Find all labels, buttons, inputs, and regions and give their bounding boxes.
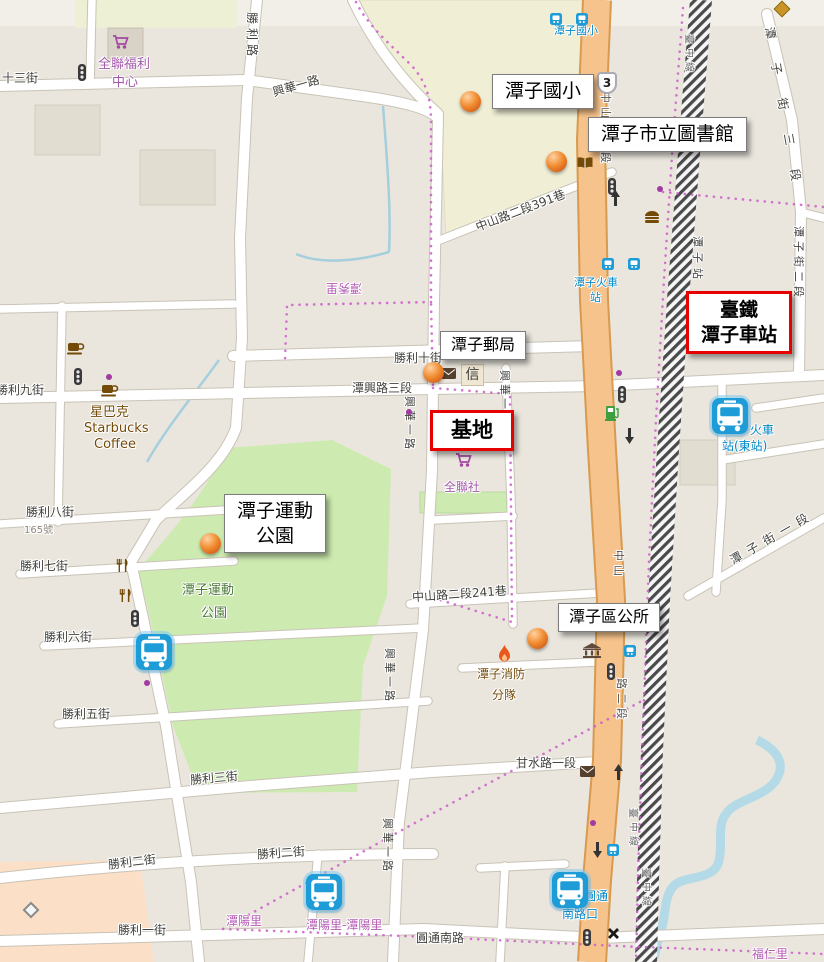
busstop-label-east-line2: 站(東站) — [722, 440, 767, 452]
busstop-label-yuantong-line2: 南路口 — [562, 908, 598, 920]
marker-district-office — [527, 628, 548, 649]
bus-station-icon-park — [136, 634, 172, 670]
bus-stop-icon-3 — [602, 255, 614, 267]
rail-line-label-2: 臺中線 — [627, 808, 637, 863]
rail-line-label-3: 臺中線 — [640, 868, 650, 923]
poi-fire-line1: 潭子消防 — [477, 668, 525, 680]
rail-line-label-1: 臺中線 — [683, 34, 693, 104]
oneway-arrow-up-2 — [614, 764, 623, 784]
boundary-dot-3 — [406, 409, 412, 415]
fast-food-icon — [644, 209, 660, 228]
callout-station-line1: 臺鐵 — [701, 298, 777, 323]
callout-station-line2: 潭子車站 — [701, 323, 777, 348]
supermarket-cart-icon-1 — [112, 34, 130, 54]
poi-pxmart-line2: 中心 — [112, 76, 138, 89]
marker-sports-park — [200, 533, 221, 554]
poi-fire-line2: 分隊 — [492, 689, 516, 701]
library-book-icon — [576, 155, 594, 174]
fuel-station-icon — [605, 404, 620, 425]
fire-station-icon — [497, 645, 512, 667]
bus-stop-icon-2 — [576, 10, 588, 22]
poi-pxmart2: 全聯社 — [444, 481, 480, 493]
road-label-shengli-2-e: 勝利二街 — [257, 845, 306, 860]
oneway-arrow-up-1 — [611, 190, 620, 210]
bus-station-icon-yuantong — [552, 872, 588, 908]
road-label-shengli-rd: 勝利路 — [246, 12, 258, 92]
boundary-dot-1 — [106, 374, 112, 380]
bus-station-icon-tanyang — [306, 874, 342, 910]
traffic-light-icon-3 — [131, 610, 139, 631]
bus-station-icon-east — [712, 398, 748, 434]
busstop-label-station-line2: 站 — [590, 292, 601, 303]
road-label-shengli-6: 勝利六街 — [44, 631, 92, 643]
bus-stop-icon-1 — [550, 10, 562, 22]
road-label-shengli-9: 勝利九街 — [0, 384, 44, 396]
cafe-icon-2 — [100, 382, 120, 403]
boundary-dot-2 — [616, 370, 622, 376]
boundary-label-tanxiu: 潭秀里 — [326, 282, 362, 294]
callout-site: 基地 — [430, 410, 514, 451]
poi-park-line1: 潭子運動 — [182, 584, 234, 597]
poi-pxmart-line1: 全聯福利 — [98, 58, 150, 71]
road-label-ganshui-1: 甘水路一段 — [516, 757, 576, 769]
road-label-xinghua-1st-v4: 興華一路 — [382, 818, 393, 898]
road-label-shengli-8: 勝利八街 — [26, 506, 74, 518]
poi-starbucks-line3: Coffee — [94, 438, 136, 451]
oneway-arrow-down-1 — [625, 424, 634, 444]
road-label-zhongshan-2b: 路二段 — [616, 678, 627, 738]
busstop-label-east-line1: 火車 — [750, 424, 774, 436]
callout-district-office: 潭子區公所 — [558, 603, 660, 632]
oneway-arrow-down-2 — [593, 838, 602, 858]
boundary-dot-4 — [144, 680, 150, 686]
traffic-light-icon-1 — [78, 64, 86, 85]
house-number-165: 165號 — [24, 526, 53, 536]
poi-starbucks-line1: 星巴克 — [90, 406, 129, 419]
post-letter-char: 信 — [466, 367, 480, 383]
route-3-number: 3 — [603, 76, 611, 90]
route-3-shield-icon: 3 — [597, 72, 617, 94]
bus-stop-icon-4 — [628, 255, 640, 267]
boundary-dot-5 — [590, 820, 596, 826]
traffic-light-icon-6 — [607, 663, 615, 684]
poi-starbucks-line2: Starbucks — [84, 422, 149, 435]
post-letter-icon: 信 — [461, 364, 484, 386]
callout-tanzi-elementary: 潭子國小 — [492, 74, 594, 109]
cafe-icon-1 — [66, 340, 86, 361]
traffic-light-icon-7 — [583, 929, 591, 950]
callout-tra-tanzi-station: 臺鐵 潭子車站 — [686, 291, 792, 354]
bus-stop-icon-5 — [624, 642, 636, 654]
restaurant-icon-2 — [119, 588, 133, 607]
callout-tanzi-post-office: 潭子郵局 — [440, 331, 526, 360]
callout-tanzi-library: 潭子市立圖書館 — [588, 117, 747, 152]
post-box-icon — [580, 762, 595, 781]
road-label-shengli-7: 勝利七街 — [20, 560, 68, 572]
poi-park-line2: 公園 — [201, 607, 227, 620]
boundary-label-tanyang-pair: 潭陽里-潭陽里 — [306, 919, 382, 931]
supermarket-cart-icon-2 — [455, 452, 473, 472]
boundary-label-tanyang: 潭陽里 — [226, 915, 262, 927]
callout-sports-park-line1: 潭子運動 — [237, 499, 313, 524]
level-crossing-icon — [606, 926, 621, 945]
map-canvas[interactable]: 勝利路 十三街 興華一路 中山路二段391巷 潭子街三段 潭子街二段 潭子街一段… — [0, 0, 824, 962]
marker-school — [460, 91, 481, 112]
road-label-tanzi-st-2: 潭子街二段 — [793, 226, 804, 321]
road-label-xinghua-1st-v1: 興華一路 — [404, 396, 415, 476]
callout-sports-park-line2: 公園 — [237, 524, 313, 549]
busstop-label-school: 潭子國小 — [554, 25, 598, 36]
boundary-label-furen: 福仁里 — [752, 948, 788, 960]
restaurant-icon-1 — [116, 558, 130, 577]
traffic-light-icon-2 — [74, 368, 82, 389]
callout-sports-park: 潭子運動 公園 — [224, 494, 326, 553]
road-label-tanxing-3: 潭興路三段 — [352, 382, 412, 394]
road-label-13th-st: 十三街 — [2, 72, 38, 84]
road-label-shengli-1: 勝利一街 — [118, 924, 166, 936]
marker-library — [546, 151, 567, 172]
road-label-zhongshan-2a: 中山 — [613, 550, 624, 590]
road-label-shengli-5: 勝利五街 — [62, 708, 110, 720]
town-hall-icon — [583, 643, 601, 662]
road-label-yuantong-s: 圓通南路 — [416, 932, 464, 944]
road-label-xinghua-1st-v3: 興華一路 — [384, 648, 395, 728]
bus-stop-icon-6 — [607, 841, 619, 853]
boundary-dot-6 — [657, 186, 663, 192]
busstop-label-station-line1: 潭子火車 — [574, 277, 618, 288]
marker-post-office — [423, 362, 444, 383]
